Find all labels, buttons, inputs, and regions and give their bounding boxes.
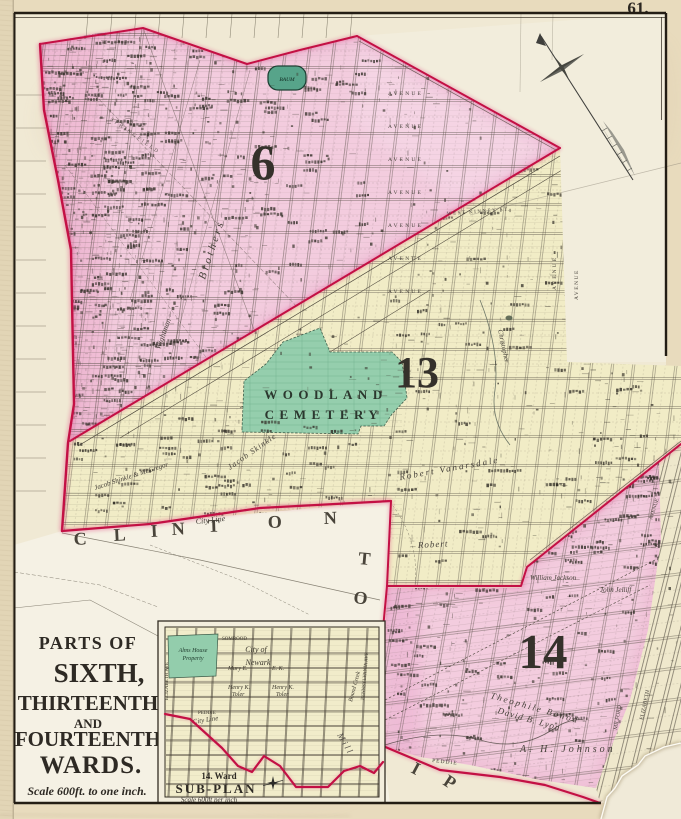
svg-text:CEMETERY: CEMETERY [265,407,384,422]
svg-text:ELIZABETH AVE: ELIZABETH AVE [165,662,170,700]
svg-text:SOMROOD: SOMROOD [222,637,247,642]
svg-text:Alms House: Alms House [178,648,208,654]
svg-text:AVENUE: AVENUE [552,256,558,290]
svg-text:O: O [267,512,282,532]
svg-text:61.: 61. [627,0,648,18]
svg-text:Henry K.: Henry K. [227,685,250,691]
svg-text:AVENUE: AVENUE [574,269,580,300]
svg-text:T: T [358,548,372,569]
svg-text:Newark: Newark [245,658,271,667]
svg-text:C: C [73,528,87,549]
svg-text:Scale 600ft. to one inch.: Scale 600ft. to one inch. [27,784,146,798]
svg-text:N: N [171,518,185,539]
svg-text:AVENUE: AVENUE [388,190,423,196]
svg-text:L: L [113,524,126,545]
svg-text:O: O [353,587,369,608]
svg-text:City of: City of [245,645,268,654]
svg-text:14: 14 [519,624,568,679]
svg-text:A. H. Johnson: A. H. Johnson [519,744,616,755]
svg-text:AVENUE: AVENUE [388,124,423,130]
svg-text:Property: Property [181,656,203,662]
svg-text:SIXTH,: SIXTH, [54,658,145,688]
svg-text:John Jelliff: John Jelliff [600,586,632,594]
svg-text:Robert: Robert [417,538,449,550]
svg-text:E. K.: E. K. [271,666,284,672]
svg-text:AVENUE: AVENUE [388,91,423,97]
svg-text:Toler: Toler [232,692,245,698]
svg-text:WOODLAND: WOODLAND [264,387,387,402]
svg-text:WARDS.: WARDS. [40,752,143,779]
svg-text:BAUM: BAUM [279,77,295,83]
svg-text:SUB-PLAN: SUB-PLAN [175,781,256,796]
svg-text:13: 13 [395,348,439,397]
svg-text:THIRTEENTH: THIRTEENTH [18,691,158,715]
svg-text:I: I [150,521,158,541]
svg-text:AVENUE: AVENUE [388,223,423,229]
svg-text:6: 6 [251,134,276,190]
svg-text:Henry K.: Henry K. [271,685,294,691]
svg-text:William Jackson: William Jackson [530,574,577,582]
svg-text:N: N [323,508,337,528]
svg-text:Toler: Toler [276,692,289,698]
svg-text:FOURTEENTH: FOURTEENTH [15,727,161,751]
svg-text:AVENUE: AVENUE [388,256,423,262]
svg-text:AVENUE: AVENUE [388,289,423,295]
svg-text:AVENUE: AVENUE [388,157,423,163]
svg-text:Mary E.: Mary E. [227,666,248,672]
svg-text:PARTS OF: PARTS OF [39,633,138,653]
svg-text:14. Ward: 14. Ward [201,771,236,781]
